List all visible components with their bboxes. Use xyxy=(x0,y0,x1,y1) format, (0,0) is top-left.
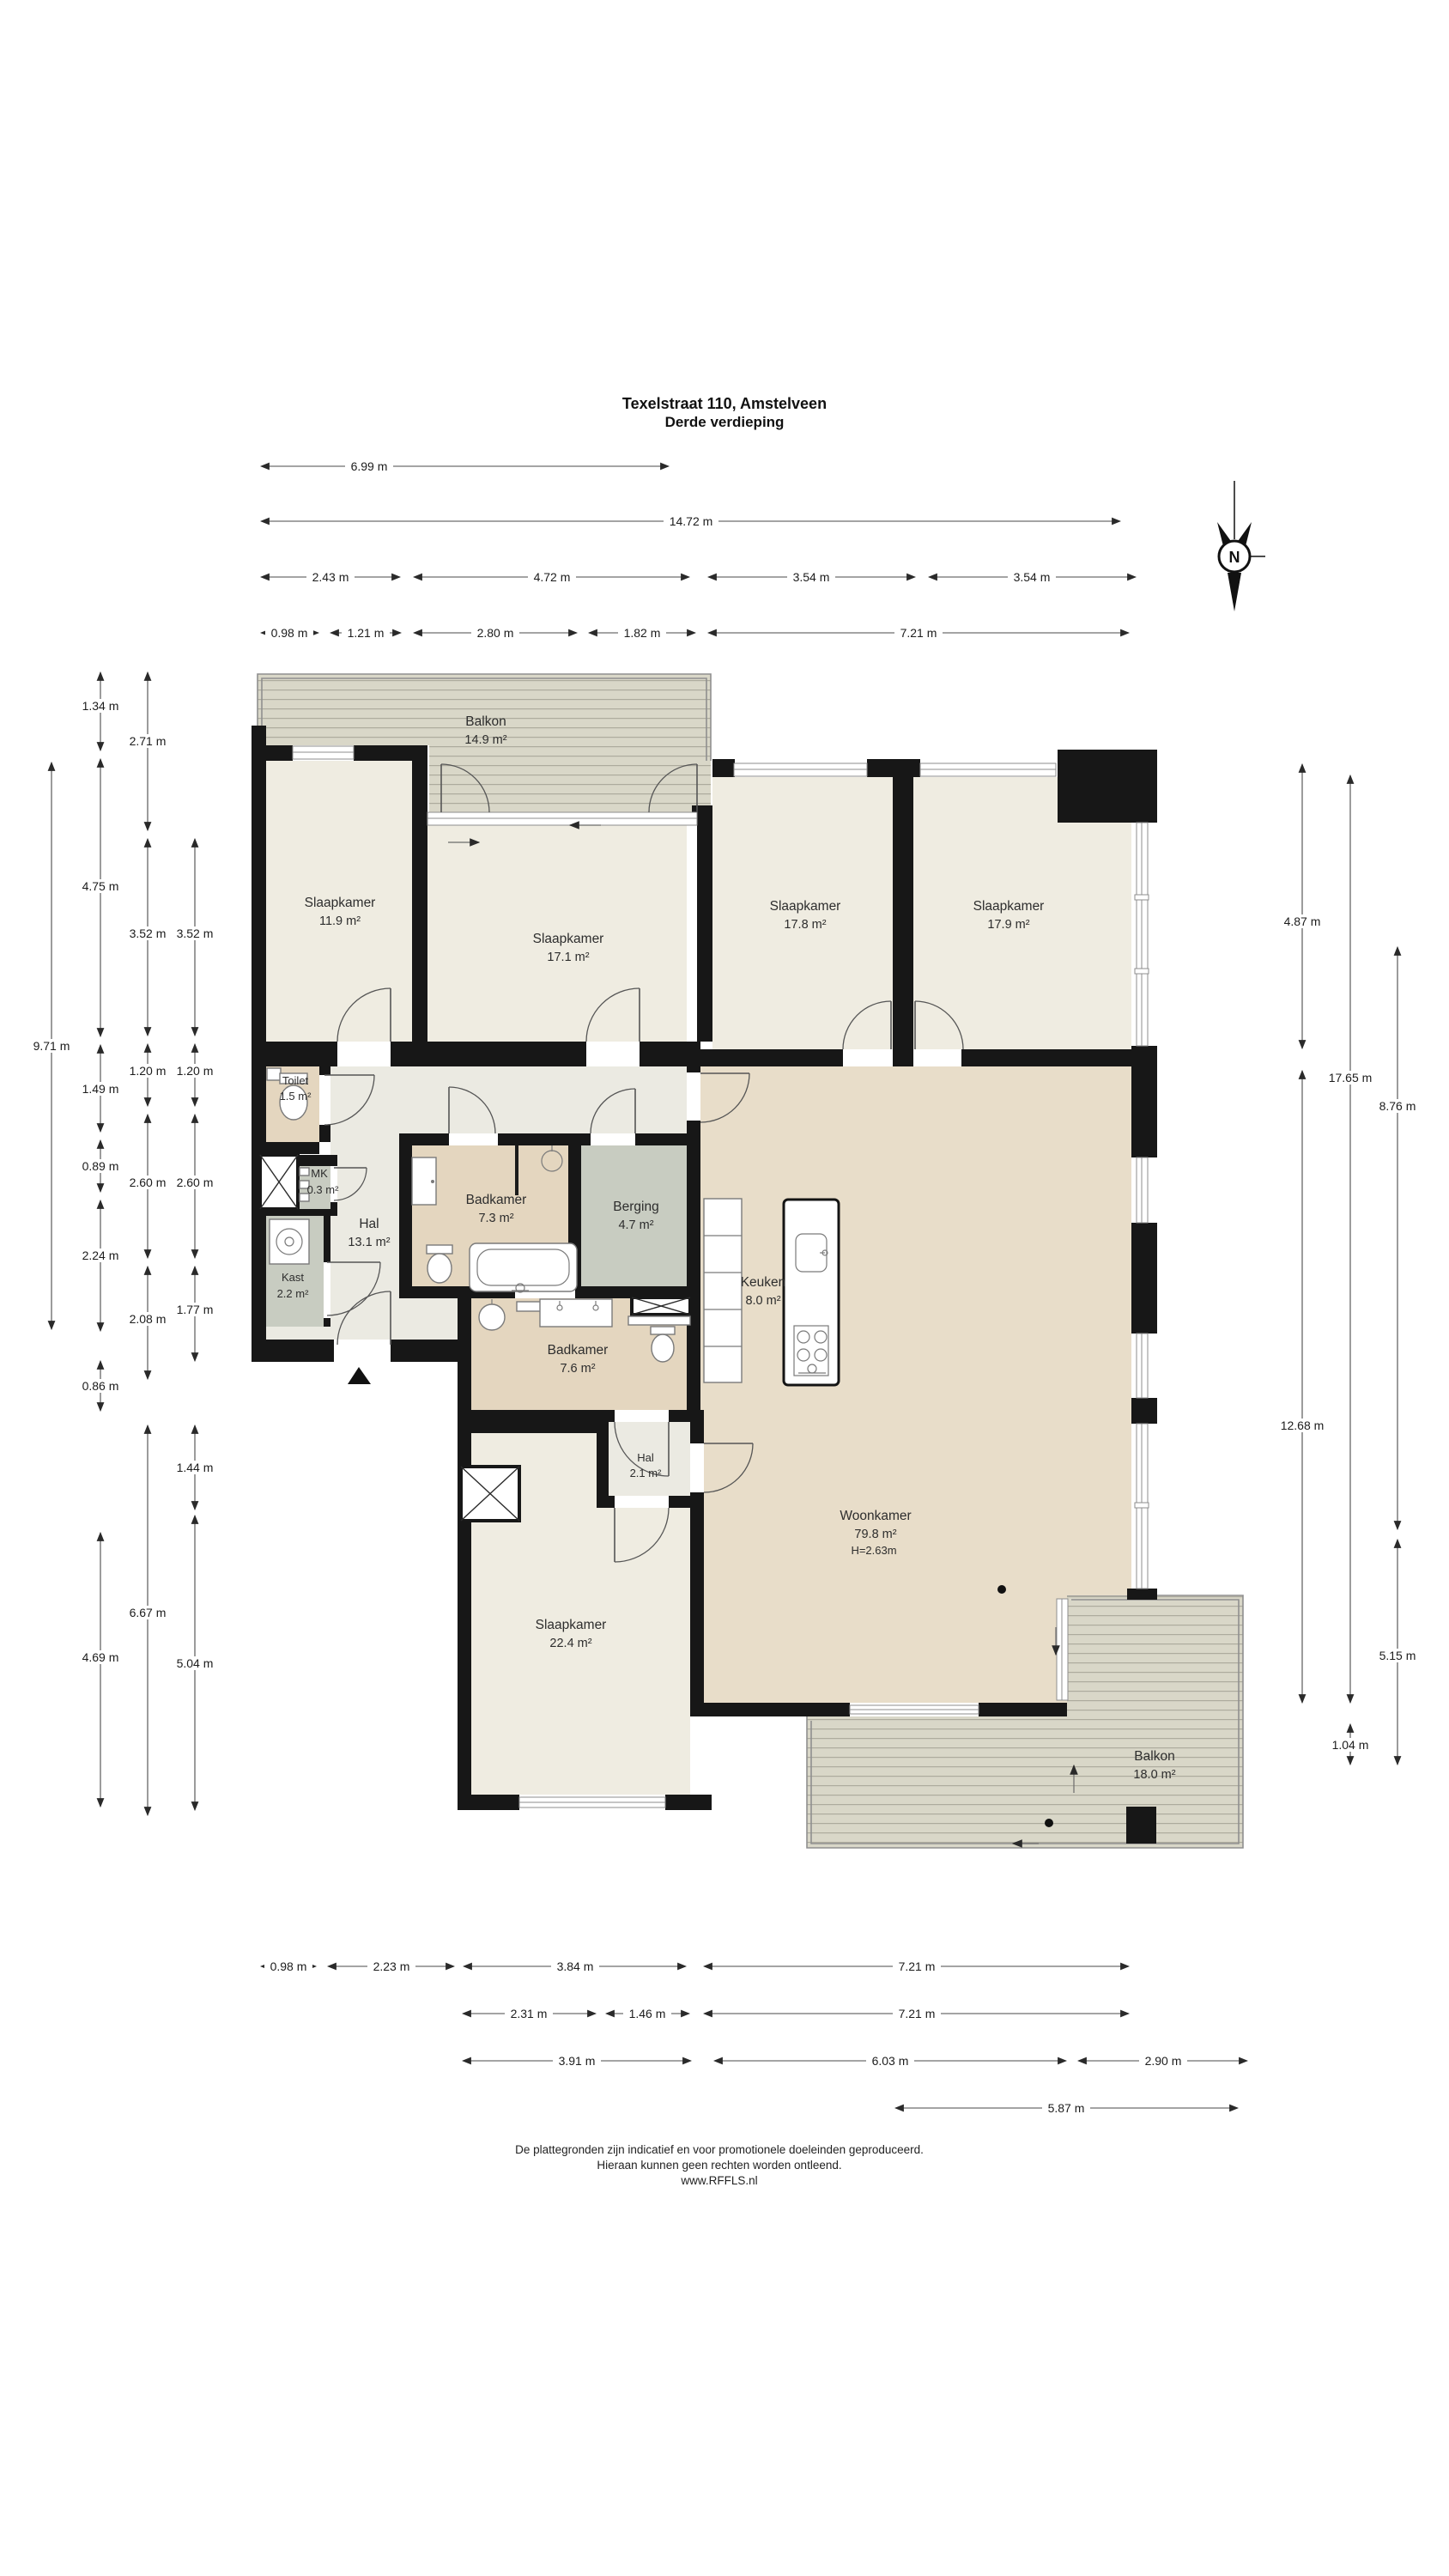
svg-text:7.21 m: 7.21 m xyxy=(899,1959,936,1973)
dimensions-left: 9.71 m 1.34 m 4.75 m 1.49 m 0.89 m 2.24 … xyxy=(27,672,219,1815)
svg-text:4.75 m: 4.75 m xyxy=(82,879,119,893)
svg-text:1.77 m: 1.77 m xyxy=(177,1303,214,1316)
svg-text:1.20 m: 1.20 m xyxy=(177,1064,214,1078)
svg-text:0.89 m: 0.89 m xyxy=(82,1159,119,1173)
svg-text:9.71 m: 9.71 m xyxy=(33,1039,70,1053)
footer-disclaimer: De plattegronden zijn indicatief en voor… xyxy=(515,2143,924,2187)
svg-text:14.9 m²: 14.9 m² xyxy=(464,733,506,747)
svg-text:2.80 m: 2.80 m xyxy=(477,626,514,640)
svg-text:6.99 m: 6.99 m xyxy=(351,459,388,473)
label-slaapkamer-2: Slaapkamer xyxy=(533,932,604,946)
svg-text:2.60 m: 2.60 m xyxy=(130,1176,167,1189)
svg-text:5.04 m: 5.04 m xyxy=(177,1656,214,1670)
svg-text:0.98 m: 0.98 m xyxy=(270,1959,307,1973)
svg-text:1.04 m: 1.04 m xyxy=(1332,1738,1369,1752)
entrance-arrow-icon xyxy=(348,1367,371,1384)
svg-text:3.54 m: 3.54 m xyxy=(793,570,830,584)
label-berging: Berging xyxy=(613,1200,658,1214)
label-balkon-top: Balkon xyxy=(465,714,506,729)
label-badkamer-2: Badkamer xyxy=(548,1343,609,1358)
label-mk: MK xyxy=(311,1167,328,1180)
dimensions-bottom: 0.98 m 2.23 m 3.84 m 7.21 m 2.31 m 1.46 … xyxy=(261,1959,1247,2115)
title-line1: Texelstraat 110, Amstelveen xyxy=(622,395,827,412)
svg-text:12.68 m: 12.68 m xyxy=(1281,1419,1325,1432)
svg-text:0.3 m²: 0.3 m² xyxy=(307,1183,340,1196)
svg-text:3.84 m: 3.84 m xyxy=(557,1959,594,1973)
svg-text:2.31 m: 2.31 m xyxy=(511,2007,548,2020)
svg-text:2.90 m: 2.90 m xyxy=(1145,2054,1182,2068)
label-woonkamer: Woonkamer xyxy=(840,1509,911,1523)
floorplan-page: Texelstraat 110, Amstelveen Derde verdie… xyxy=(0,0,1449,2576)
svg-text:5.15 m: 5.15 m xyxy=(1379,1649,1416,1662)
svg-text:2.2 m²: 2.2 m² xyxy=(277,1287,310,1300)
svg-text:1.49 m: 1.49 m xyxy=(82,1082,119,1096)
svg-text:7.21 m: 7.21 m xyxy=(900,626,937,640)
label-slaapkamer-5: Slaapkamer xyxy=(536,1618,607,1632)
svg-text:8.0 m²: 8.0 m² xyxy=(745,1294,780,1308)
page-title: Texelstraat 110, Amstelveen Derde verdie… xyxy=(622,395,827,430)
compass: N xyxy=(1217,481,1265,611)
svg-text:4.87 m: 4.87 m xyxy=(1284,914,1321,928)
svg-text:7.3 m²: 7.3 m² xyxy=(478,1212,513,1225)
label-hal-2: Hal xyxy=(637,1451,654,1464)
svg-text:4.7 m²: 4.7 m² xyxy=(618,1218,653,1232)
svg-text:1.21 m: 1.21 m xyxy=(348,626,385,640)
svg-text:1.5 m²: 1.5 m² xyxy=(280,1090,312,1103)
svg-text:13.1 m²: 13.1 m² xyxy=(348,1236,390,1249)
footer-line2: Hieraan kunnen geen rechten worden ontle… xyxy=(597,2159,841,2172)
svg-text:6.67 m: 6.67 m xyxy=(130,1606,167,1619)
svg-text:4.72 m: 4.72 m xyxy=(534,570,571,584)
svg-text:17.1 m²: 17.1 m² xyxy=(547,951,589,964)
label-slaapkamer-4: Slaapkamer xyxy=(973,899,1045,914)
svg-text:2.60 m: 2.60 m xyxy=(177,1176,214,1189)
label-slaapkamer-3: Slaapkamer xyxy=(770,899,841,914)
label-keuken: Keuken xyxy=(741,1275,786,1290)
svg-text:1.46 m: 1.46 m xyxy=(629,2007,666,2020)
label-slaapkamer-1: Slaapkamer xyxy=(305,896,376,910)
svg-text:17.65 m: 17.65 m xyxy=(1329,1071,1373,1084)
svg-text:22.4 m²: 22.4 m² xyxy=(549,1637,591,1650)
compass-north-label: N xyxy=(1229,549,1240,566)
svg-text:1.44 m: 1.44 m xyxy=(177,1461,214,1474)
svg-text:2.71 m: 2.71 m xyxy=(130,734,167,748)
svg-text:2.24 m: 2.24 m xyxy=(82,1249,119,1262)
svg-text:1.82 m: 1.82 m xyxy=(624,626,661,640)
title-line2: Derde verdieping xyxy=(665,414,785,430)
svg-text:2.23 m: 2.23 m xyxy=(373,1959,410,1973)
dimensions-top: 6.99 m 14.72 m 2.43 m 4.72 m 3.54 m 3.54… xyxy=(261,459,1136,640)
label-kast: Kast xyxy=(282,1271,304,1284)
svg-text:11.9 m²: 11.9 m² xyxy=(319,914,361,928)
footer-line3: www.RFFLS.nl xyxy=(680,2174,757,2187)
closet-boiler xyxy=(270,1219,309,1264)
svg-text:79.8 m²: 79.8 m² xyxy=(854,1528,896,1541)
svg-text:17.8 m²: 17.8 m² xyxy=(784,918,826,932)
svg-text:7.21 m: 7.21 m xyxy=(899,2007,936,2020)
svg-text:1.20 m: 1.20 m xyxy=(130,1064,167,1078)
svg-text:18.0 m²: 18.0 m² xyxy=(1133,1768,1175,1782)
label-hal: Hal xyxy=(359,1217,379,1231)
svg-text:3.91 m: 3.91 m xyxy=(559,2054,596,2068)
svg-text:2.08 m: 2.08 m xyxy=(130,1312,167,1326)
svg-text:7.6 m²: 7.6 m² xyxy=(560,1362,595,1376)
svg-text:2.1 m²: 2.1 m² xyxy=(630,1467,663,1479)
svg-text:1.34 m: 1.34 m xyxy=(82,699,119,713)
dimensions-right: 4.87 m 12.68 m 17.65 m 1.04 m 8.76 m 5.1… xyxy=(1275,764,1422,1765)
svg-text:5.87 m: 5.87 m xyxy=(1048,2101,1085,2115)
svg-text:4.69 m: 4.69 m xyxy=(82,1650,119,1664)
label-ceiling-height: H=2.63m xyxy=(851,1544,896,1557)
svg-text:2.43 m: 2.43 m xyxy=(312,570,349,584)
svg-text:8.76 m: 8.76 m xyxy=(1379,1099,1416,1113)
svg-text:0.98 m: 0.98 m xyxy=(271,626,308,640)
svg-text:14.72 m: 14.72 m xyxy=(670,514,713,528)
svg-text:17.9 m²: 17.9 m² xyxy=(987,918,1029,932)
floorplan-canvas: Texelstraat 110, Amstelveen Derde verdie… xyxy=(0,0,1449,2576)
svg-text:3.52 m: 3.52 m xyxy=(177,927,214,940)
svg-text:3.54 m: 3.54 m xyxy=(1014,570,1051,584)
label-badkamer-1: Badkamer xyxy=(466,1193,527,1207)
svg-text:6.03 m: 6.03 m xyxy=(872,2054,909,2068)
label-toilet: Toilet xyxy=(282,1074,309,1087)
svg-text:3.52 m: 3.52 m xyxy=(130,927,167,940)
svg-text:0.86 m: 0.86 m xyxy=(82,1379,119,1393)
label-balkon-bottom: Balkon xyxy=(1134,1749,1174,1764)
footer-line1: De plattegronden zijn indicatief en voor… xyxy=(515,2143,924,2156)
